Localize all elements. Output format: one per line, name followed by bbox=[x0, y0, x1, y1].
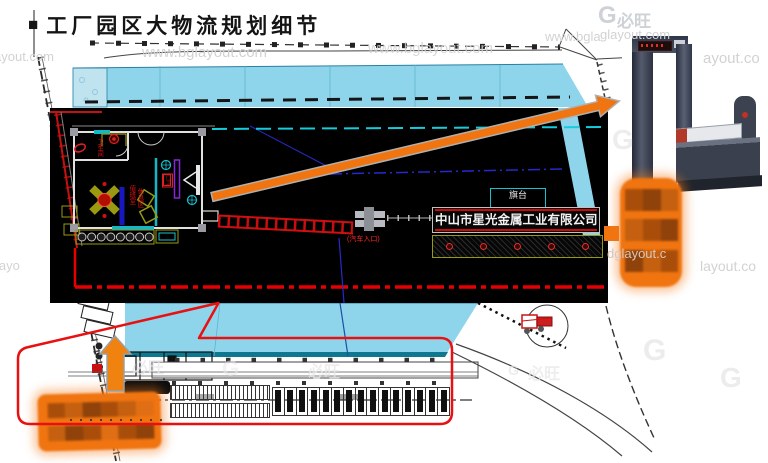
flag-platform-callout: 旗台 bbox=[490, 188, 546, 209]
flower-planter bbox=[432, 235, 603, 258]
gate-led-lights bbox=[641, 44, 665, 47]
company-sign-text: 中山市星光金属工业有限公司 bbox=[435, 209, 597, 231]
flower-icon bbox=[446, 243, 453, 250]
desk-symbol bbox=[175, 160, 180, 198]
xray-scanner-logo bbox=[742, 112, 748, 118]
title-bullet: ■ bbox=[28, 15, 38, 35]
page-title: ■ 工厂园区大物流规划细节 bbox=[28, 10, 321, 40]
plan-inset-panel: 卫生间 值班室 休息区 门卫 旗台 中山市星光金属工业有限公司 (汽车入口) bbox=[50, 108, 608, 303]
building-roof-bottom bbox=[125, 303, 478, 356]
slide: 卫生间 值班室 休息区 门卫 旗台 中山市星光金属工业有限公司 (汽车入口) bbox=[0, 0, 768, 463]
page-title-text: 工厂园区大物流规划细节 bbox=[46, 10, 321, 40]
redacted-chip bbox=[604, 226, 619, 241]
vehicle-entrance-label: (汽车入口) bbox=[347, 234, 380, 244]
flag-platform-label: 旗台 bbox=[509, 190, 527, 200]
toilet-symbol bbox=[74, 143, 87, 154]
table-symbol bbox=[98, 194, 111, 207]
company-sign: 中山市星光金属工业有限公司 bbox=[432, 207, 600, 233]
gate-left-pillar bbox=[632, 52, 653, 190]
room-label-guard: 门卫 bbox=[163, 174, 171, 186]
room-label-rest: 休息区 bbox=[135, 188, 142, 208]
flower-icon bbox=[480, 243, 487, 250]
truck-symbol bbox=[522, 315, 552, 334]
flower-icon bbox=[582, 243, 589, 250]
parking-row-cars bbox=[272, 387, 450, 416]
redacted-region-2 bbox=[620, 178, 682, 287]
parking-strip-1 bbox=[170, 385, 270, 400]
redacted-region-1 bbox=[37, 391, 161, 451]
parking-strip-2 bbox=[170, 403, 270, 418]
security-equipment-photo bbox=[622, 28, 768, 196]
flower-icon bbox=[514, 243, 521, 250]
room-label-duty: 值班室 bbox=[127, 185, 134, 205]
flower-icon bbox=[548, 243, 555, 250]
room-label-restroom: 卫生间 bbox=[96, 139, 102, 157]
